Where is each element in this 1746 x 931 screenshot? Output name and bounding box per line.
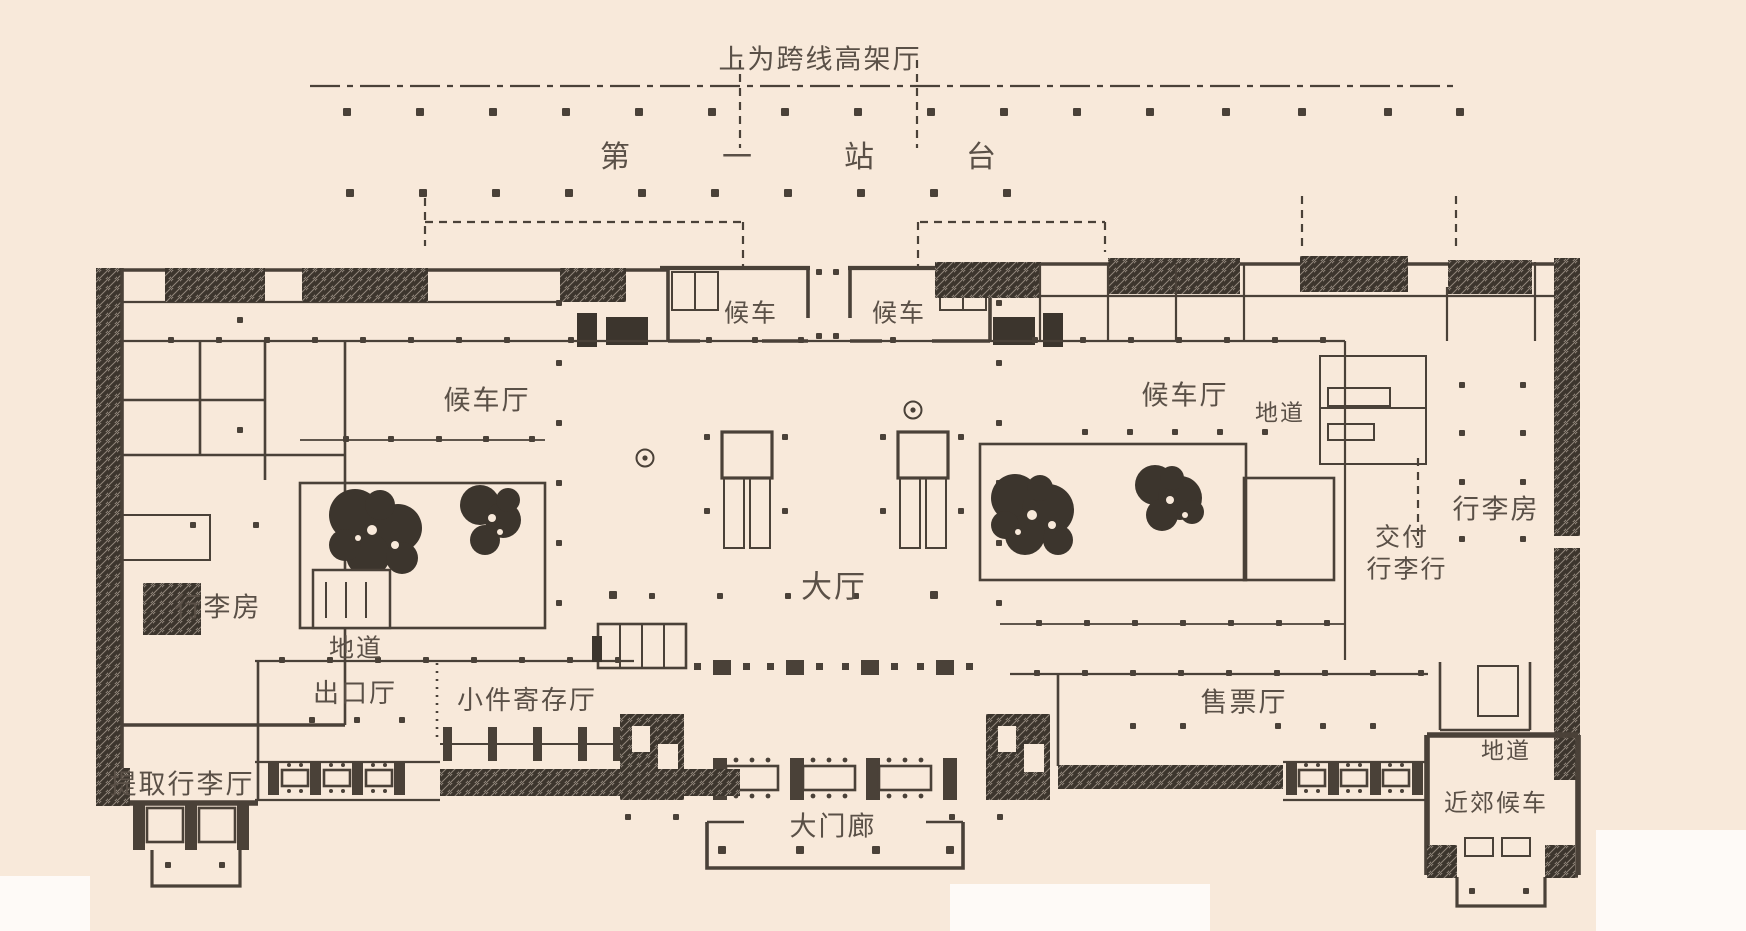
- left-exterior-wall: [96, 268, 122, 803]
- label-waiting-right: 候车: [872, 301, 926, 326]
- stair-bank-left: [722, 432, 772, 548]
- platform-column-dots-row2: [346, 189, 1011, 197]
- tree-cluster-left: [329, 485, 521, 577]
- underpass-stair-lower-right: [1440, 662, 1530, 730]
- label-luggage-room-right: 行李房: [1453, 497, 1540, 524]
- label-waiting-left: 候车: [724, 301, 778, 326]
- facade-wall-band-left: [440, 769, 740, 796]
- label-underpass-upper-right: 地道: [1255, 403, 1305, 426]
- door-vestibule: [1341, 763, 1367, 793]
- door-vestibule: [324, 763, 350, 793]
- left-underpass-stair-room: [313, 570, 390, 628]
- label-underpass-lower-right: 地道: [1481, 741, 1531, 764]
- label-luggage-claim-hall: 提取行李厅: [110, 772, 255, 799]
- label-waiting-hall-right: 候车厅: [1142, 383, 1229, 410]
- door-vestibule: [803, 758, 855, 799]
- label-luggage-delivery-2: 行李行: [1366, 557, 1447, 582]
- label-ticket-hall: 售票厅: [1201, 690, 1288, 717]
- label-luggage-room-left: 行李房: [175, 595, 262, 622]
- front-facade: [96, 624, 1428, 886]
- label-waiting-hall-left: 候车厅: [444, 388, 531, 415]
- underpass-stair-upper-right: [1320, 356, 1426, 464]
- door-vestibule: [282, 763, 308, 793]
- label-main-hall: 大厅: [801, 573, 867, 604]
- door-vestibule: [366, 763, 392, 793]
- stair-tower-right: [986, 714, 1050, 800]
- label-underpass-left: 地道: [329, 636, 383, 661]
- door-vestibule: [1383, 763, 1409, 793]
- label-elevated-hall: 上为跨线高架厅: [719, 47, 922, 74]
- stair-bank-right: [898, 432, 948, 548]
- scan-artifacts: [0, 830, 1746, 931]
- label-main-portico: 大门廊: [790, 814, 877, 841]
- main-hall-columns: [609, 591, 938, 599]
- left-courtyard-roof: [300, 483, 545, 628]
- door-vestibule: [1299, 763, 1325, 793]
- label-exit-hall: 出口厅: [313, 681, 397, 707]
- center-concourse: [560, 268, 1063, 675]
- label-luggage-delivery-1: 交付: [1375, 525, 1429, 550]
- label-platform-1: 第一站台: [600, 143, 1088, 173]
- door-vestibule: [879, 758, 931, 799]
- label-suburban-waiting: 近郊候车: [1444, 791, 1548, 815]
- facade-wall-band-right: [1058, 765, 1283, 789]
- floor-plan-scan: 上为跨线高架厅 第一站台 候车 候车 候车厅 候车厅 地道 行李房 行李房 地道…: [0, 0, 1746, 931]
- label-parcel-check-hall: 小件寄存厅: [457, 688, 597, 714]
- left-wing: [96, 268, 668, 803]
- column-circle-symbols: [637, 402, 922, 467]
- right-exterior-wall: [1554, 258, 1580, 536]
- right-courtyard-roof: [980, 444, 1334, 580]
- platform-column-dots-row1: [343, 108, 1464, 116]
- tree-cluster-right: [991, 465, 1204, 555]
